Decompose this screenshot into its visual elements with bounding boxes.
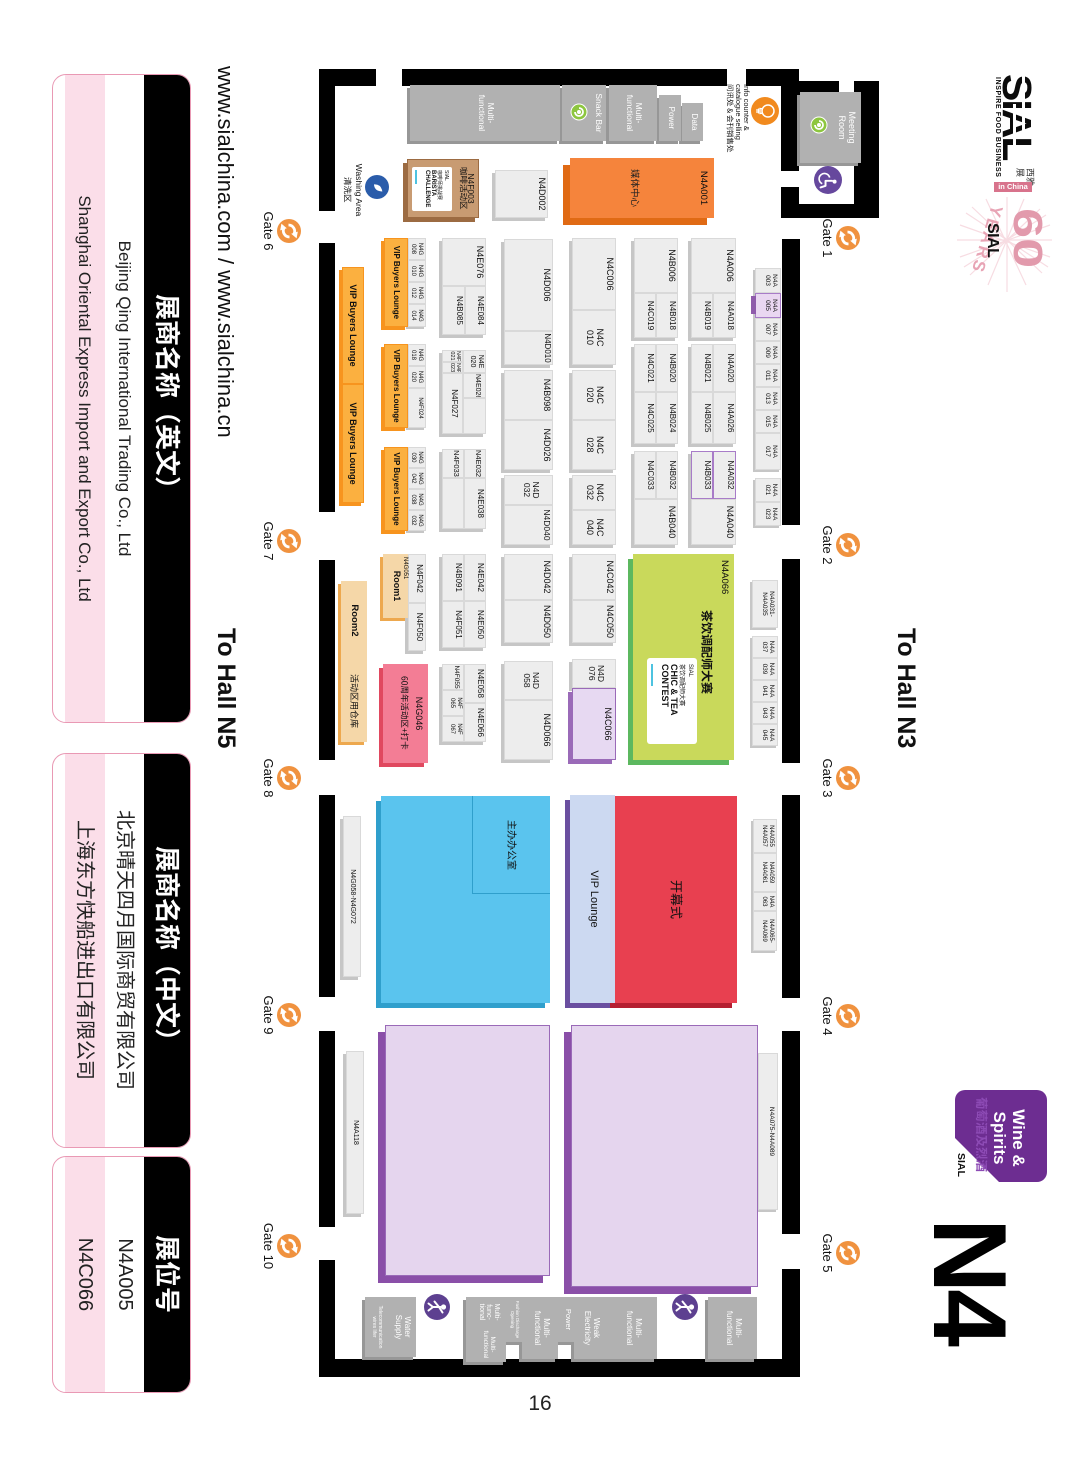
svg-text:Spirits: Spirits [990,1112,1009,1165]
svg-text:SIAL: SIAL [984,223,1001,258]
svg-text:60: 60 [1005,208,1050,268]
svg-text:Wine &: Wine & [1009,1109,1028,1166]
svg-text:SIAL: SIAL [955,1153,967,1178]
